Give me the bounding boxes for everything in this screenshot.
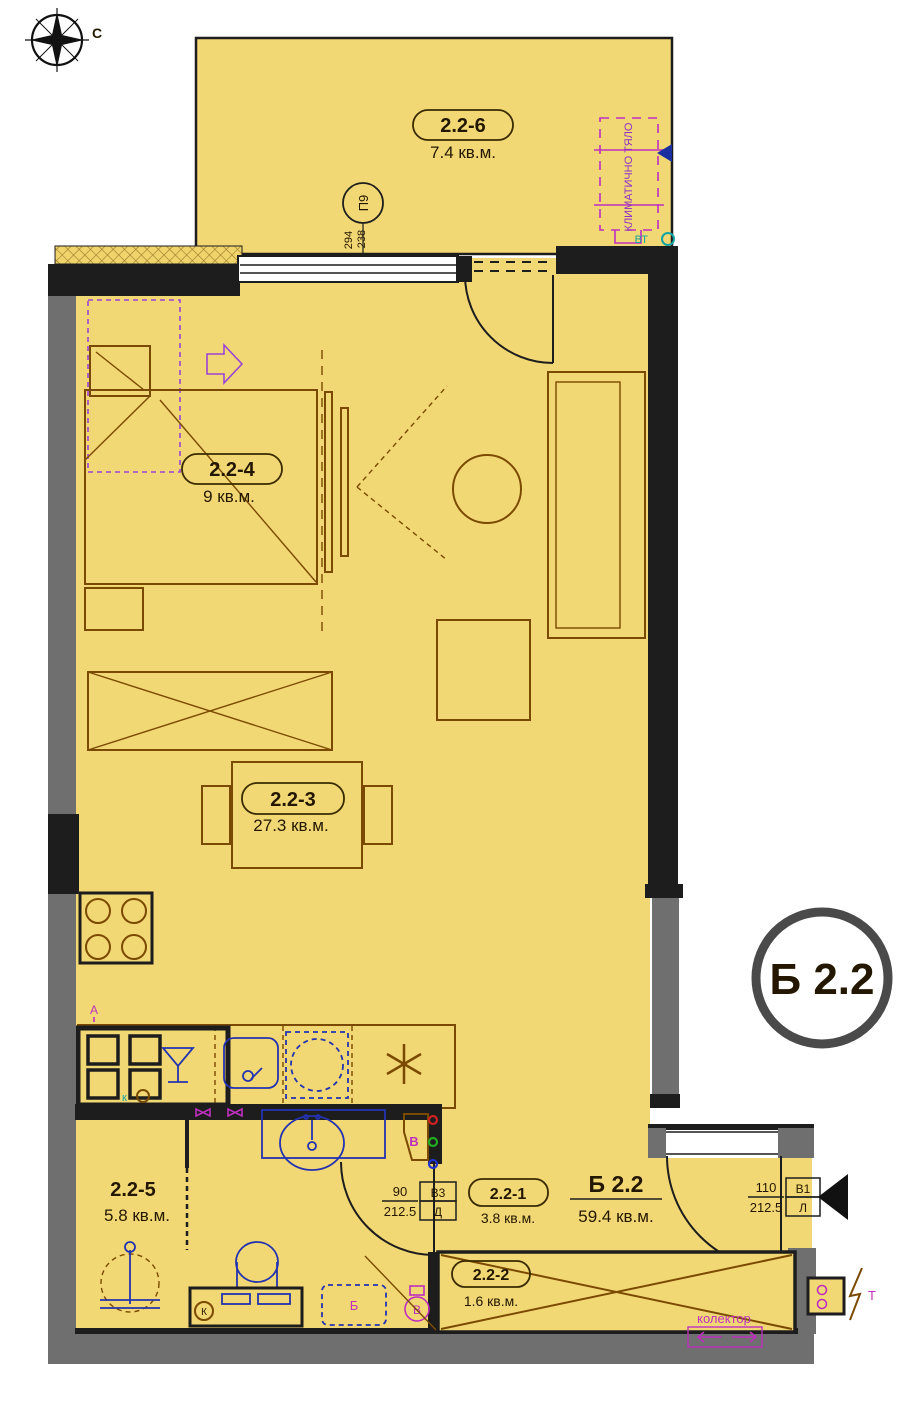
- room-id: 2.2-4: [209, 459, 255, 481]
- bedroom-window: [238, 256, 458, 282]
- room-area: 9 кв.м.: [203, 487, 255, 506]
- insulation-hatch: [55, 246, 242, 264]
- room-area: 27.3 кв.м.: [253, 816, 328, 835]
- wall-entry-top-right: [778, 1128, 814, 1158]
- washer-b-label: Б: [350, 1298, 359, 1313]
- wall-corridor-left-upper: [428, 1104, 442, 1164]
- ac-unit-label: КЛИМАТИЧНО ТЯЛО: [623, 122, 635, 231]
- vt-label: ВТ: [635, 234, 649, 246]
- wall-right-lower: [652, 898, 679, 1098]
- niche: 2.2-2 1.6 кв.м. колектор: [438, 1252, 795, 1347]
- outlet-a-label: А: [90, 1003, 98, 1017]
- unit-badge: Б 2.2: [756, 912, 888, 1044]
- room-id: 2.2-2: [473, 1267, 510, 1284]
- badge-label: Б 2.2: [769, 955, 874, 1004]
- door-width: 90: [393, 1184, 407, 1199]
- door-width: 110: [756, 1180, 777, 1195]
- compass: С: [25, 8, 102, 72]
- room-id: 2.2-3: [270, 789, 316, 811]
- wall-top-left: [48, 264, 240, 296]
- room-id: 2.2-6: [440, 115, 486, 137]
- wall-entry-top-left: [648, 1128, 666, 1158]
- wall-bathroom-top: [75, 1104, 431, 1120]
- unit-name: Б 2.2: [589, 1171, 644, 1197]
- meter-t-label: Т: [868, 1288, 876, 1303]
- door-code: В1: [796, 1182, 811, 1196]
- door-letter: Л: [799, 1201, 807, 1215]
- unit-area: 59.4 кв.м.: [578, 1207, 653, 1226]
- window-height: 238: [356, 230, 368, 248]
- room-area: 3.8 кв.м.: [481, 1210, 535, 1226]
- meter-box: [808, 1278, 844, 1314]
- door-height: 212.5: [384, 1204, 417, 1219]
- room-area: 7.4 кв.м.: [430, 143, 496, 162]
- floor-plan-drawing: КЛИМАТИЧНО ТЯЛО П9 294 238 ВТ: [0, 0, 922, 1405]
- k-small-label: к: [122, 1092, 127, 1104]
- compass-north-label: С: [92, 25, 102, 41]
- window-post: [456, 256, 472, 282]
- bathroom-partition: [185, 1120, 189, 1168]
- room-area: 5.8 кв.м.: [104, 1206, 170, 1225]
- door-height: 212.5: [750, 1200, 783, 1215]
- floor-plan-canvas: КЛИМАТИЧНО ТЯЛО П9 294 238 ВТ: [0, 0, 922, 1405]
- k-circled-label: К: [201, 1307, 207, 1318]
- electric-meter: Т: [808, 1268, 876, 1320]
- wall-right-upper: [648, 246, 678, 886]
- door-code: В3: [431, 1186, 446, 1200]
- room-area: 1.6 кв.м.: [464, 1293, 518, 1309]
- room-id: 2.2-5: [110, 1179, 156, 1201]
- lightning-icon: [850, 1268, 862, 1320]
- shaft-v-label: В: [409, 1134, 418, 1149]
- collector-label: колектор: [697, 1311, 751, 1326]
- entrance-arrow-icon: [818, 1174, 848, 1220]
- window-marker-code: П9: [356, 195, 371, 212]
- window-width: 294: [343, 231, 355, 249]
- door-letter: Д: [434, 1205, 442, 1219]
- room-id: 2.2-1: [490, 1186, 527, 1203]
